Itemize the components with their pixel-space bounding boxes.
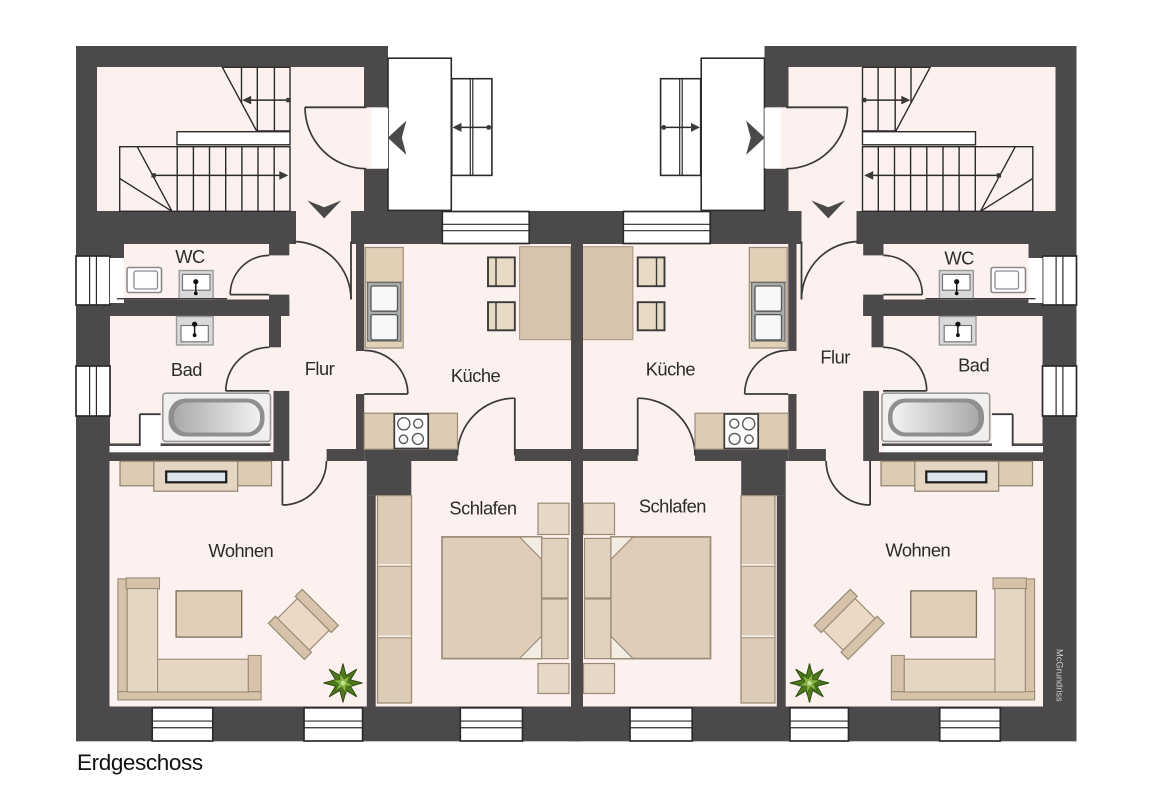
svg-text:WC: WC	[944, 248, 974, 269]
svg-text:Flur: Flur	[305, 358, 335, 379]
svg-text:Schlafen: Schlafen	[639, 495, 706, 516]
svg-text:Küche: Küche	[646, 359, 696, 380]
svg-text:Erdgeschoss: Erdgeschoss	[77, 750, 203, 775]
svg-text:WC: WC	[175, 246, 205, 267]
svg-text:Bad: Bad	[171, 359, 202, 380]
svg-text:Flur: Flur	[820, 347, 850, 368]
svg-text:Schlafen: Schlafen	[449, 498, 516, 519]
svg-text:Wohnen: Wohnen	[885, 540, 950, 561]
svg-text:Bad: Bad	[958, 354, 989, 375]
svg-text:Küche: Küche	[451, 365, 501, 386]
svg-text:McGrundriss: McGrundriss	[1055, 649, 1065, 702]
svg-text:Wohnen: Wohnen	[208, 540, 273, 561]
